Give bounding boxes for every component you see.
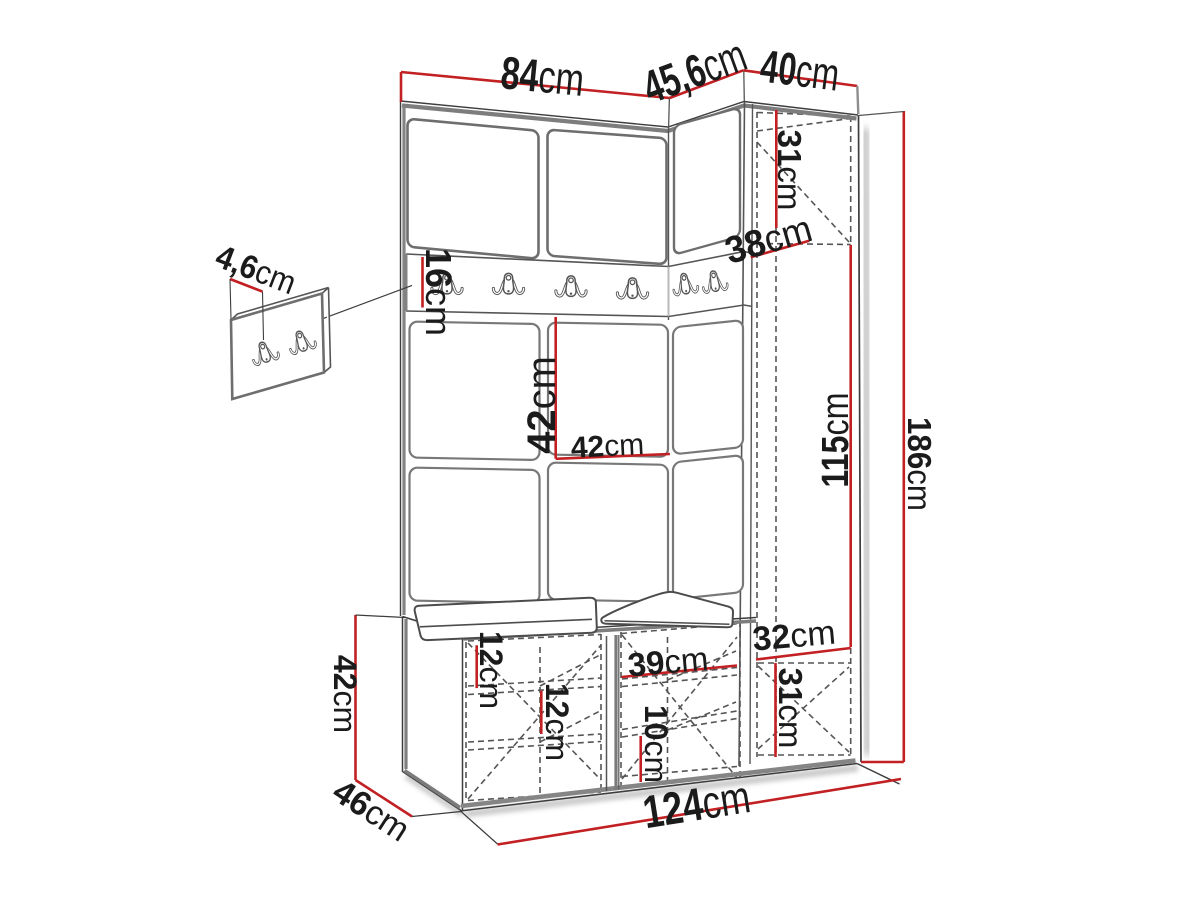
- svg-text:12cm: 12cm: [539, 683, 575, 761]
- svg-text:42cm: 42cm: [520, 356, 564, 454]
- svg-text:16cm: 16cm: [418, 248, 459, 336]
- svg-text:10cm: 10cm: [638, 705, 674, 783]
- svg-text:42cm: 42cm: [327, 655, 363, 733]
- svg-text:31cm: 31cm: [771, 130, 808, 211]
- svg-text:40cm: 40cm: [758, 41, 842, 101]
- svg-text:32cm: 32cm: [751, 613, 837, 658]
- svg-text:39cm: 39cm: [626, 640, 710, 684]
- svg-text:31cm: 31cm: [772, 668, 809, 749]
- svg-text:186cm: 186cm: [901, 417, 938, 511]
- svg-text:12cm: 12cm: [473, 631, 509, 709]
- svg-text:84cm: 84cm: [499, 46, 587, 106]
- svg-text:42cm: 42cm: [570, 428, 645, 465]
- svg-text:115cm: 115cm: [815, 392, 857, 487]
